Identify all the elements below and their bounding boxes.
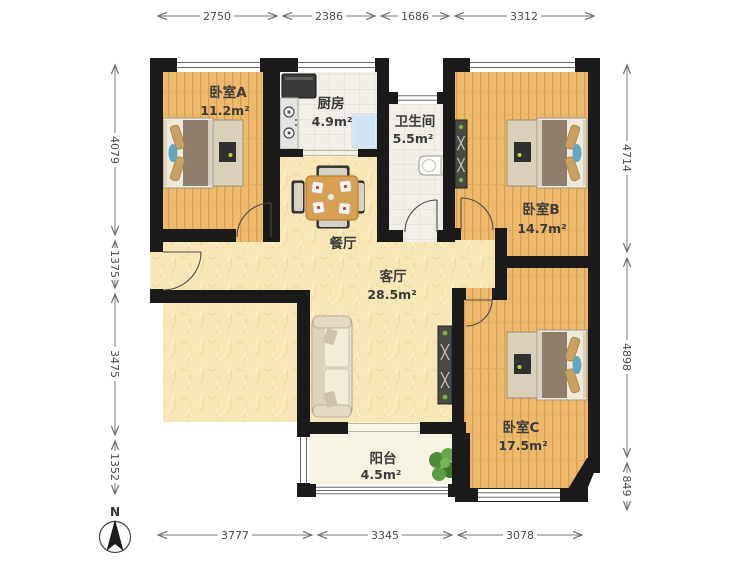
dim-left-4: 1352 <box>108 453 121 481</box>
room-area-balcony: 4.5m² <box>361 467 402 482</box>
dim-top-3: 1686 <box>401 10 429 23</box>
floorplan-svg: 卧室A 11.2m² 厨房 4.9m² 卫生间 5.5m² 卧室B 14.7m²… <box>0 0 750 562</box>
room-label-bedroom-a: 卧室A <box>209 84 247 101</box>
dim-right-1: 4714 <box>620 144 633 172</box>
dim-top-1: 2750 <box>203 10 231 23</box>
dim-right-3: 849 <box>620 476 633 497</box>
room-label-bathroom: 卫生间 <box>395 113 436 130</box>
room-area-bedroom-a: 11.2m² <box>200 103 249 118</box>
bedroom-c-window <box>478 489 560 501</box>
bedroom-b-bedset <box>507 118 587 188</box>
bedroom-a-bedset <box>163 118 243 188</box>
floorplan-canvas: 卧室A 11.2m² 厨房 4.9m² 卫生间 5.5m² 卧室B 14.7m²… <box>0 0 750 562</box>
room-label-bedroom-c: 卧室C <box>503 419 540 436</box>
dim-right-2: 4898 <box>620 343 633 371</box>
kitchen-window <box>298 58 375 72</box>
room-area-bathroom: 5.5m² <box>393 131 434 146</box>
north-compass: N <box>100 505 131 553</box>
dim-left-1: 4079 <box>108 136 121 164</box>
room-label-bedroom-b: 卧室B <box>522 201 559 218</box>
room-area-kitchen: 4.9m² <box>312 114 353 129</box>
dim-bottom-2: 3345 <box>371 529 399 542</box>
living-wardrobe-strip <box>438 326 452 404</box>
bedroom-b-wardrobe-strip <box>455 120 467 188</box>
stove-counter <box>280 98 298 149</box>
compass-needle <box>107 520 124 552</box>
room-area-living: 28.5m² <box>367 287 416 302</box>
balcony-side-window <box>297 437 310 483</box>
room-label-dining: 餐厅 <box>329 235 357 252</box>
north-label: N <box>110 505 120 519</box>
dim-left-2: 1375 <box>108 250 121 278</box>
dim-bottom-3: 3078 <box>506 529 534 542</box>
room-label-kitchen: 厨房 <box>318 95 345 112</box>
dim-top-2: 2386 <box>315 10 343 23</box>
bedroom-a-window <box>177 58 260 72</box>
room-area-bedroom-b: 14.7m² <box>517 221 566 236</box>
hall-floor <box>443 240 495 288</box>
entry-threshold-floor <box>150 252 163 289</box>
room-label-living: 客厅 <box>379 268 407 285</box>
bedroom-b-window <box>470 58 575 72</box>
room-label-balcony: 阳台 <box>370 450 397 467</box>
bathroom-window <box>398 92 437 104</box>
sofa <box>312 316 352 417</box>
dim-top-4: 3312 <box>510 10 538 23</box>
bedroom-c-bedset <box>507 330 587 400</box>
dim-bottom-1: 3777 <box>221 529 249 542</box>
dim-left-3: 3475 <box>108 350 121 378</box>
room-area-bedroom-c: 17.5m² <box>498 438 547 453</box>
kitchen-sink <box>352 114 377 148</box>
